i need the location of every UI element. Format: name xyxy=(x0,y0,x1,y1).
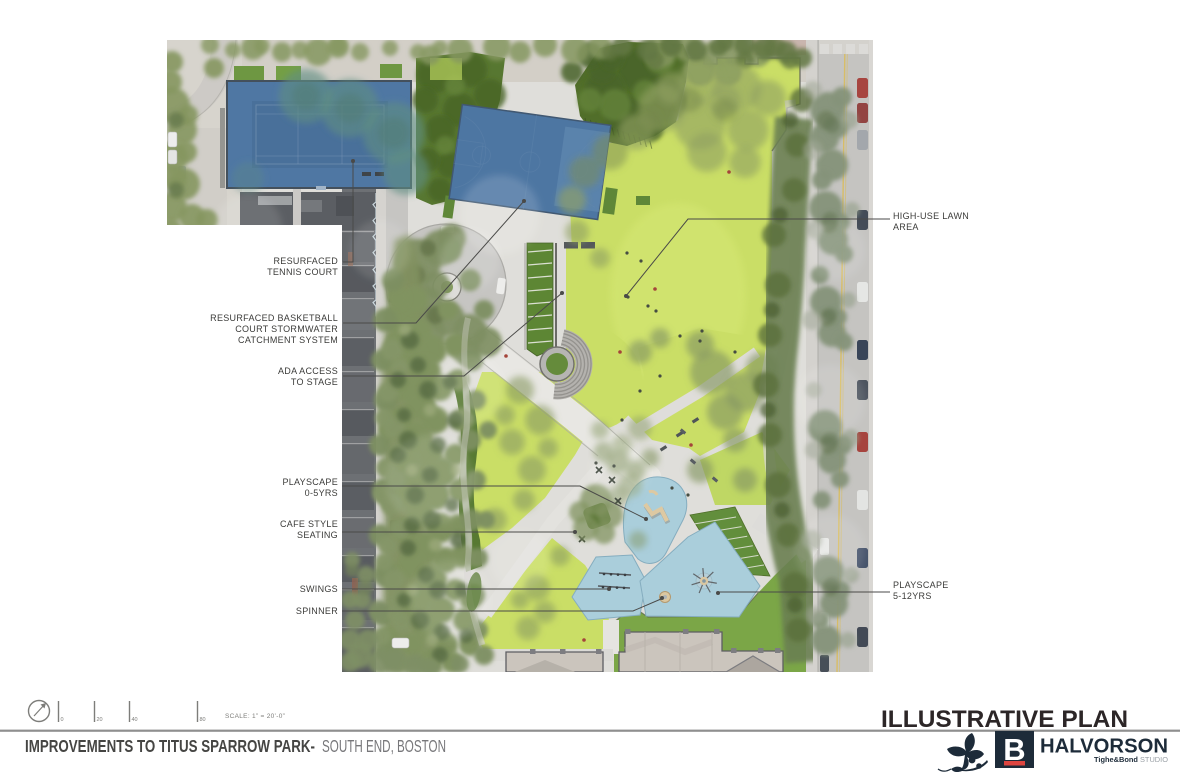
svg-text:SCALE: 1” = 20’-0”: SCALE: 1” = 20’-0” xyxy=(225,713,285,720)
svg-text:20: 20 xyxy=(97,717,103,723)
svg-text:SWINGS: SWINGS xyxy=(300,584,338,594)
svg-text:HALVORSON: HALVORSON xyxy=(1040,736,1168,758)
svg-text:RESURFACED BASKETBALLCOURT STO: RESURFACED BASKETBALLCOURT STORMWATERCAT… xyxy=(210,313,338,345)
svg-text:Tighe&Bond STUDIO: Tighe&Bond STUDIO xyxy=(1094,757,1169,764)
svg-text:PLAYSCAPE5-12YRS: PLAYSCAPE5-12YRS xyxy=(893,580,949,601)
svg-text:ADA ACCESSTO STAGE: ADA ACCESSTO STAGE xyxy=(278,366,338,387)
svg-text:80: 80 xyxy=(200,717,206,723)
svg-text:PLAYSCAPE0-5YRS: PLAYSCAPE0-5YRS xyxy=(282,477,338,498)
svg-text:IMPROVEMENTS TO TITUS SPARROW: IMPROVEMENTS TO TITUS SPARROW PARK- xyxy=(25,736,315,756)
svg-text:40: 40 xyxy=(132,717,138,723)
svg-text:CAFE STYLESEATING: CAFE STYLESEATING xyxy=(280,519,338,540)
svg-text:ILLUSTRATIVE PLAN: ILLUSTRATIVE PLAN xyxy=(881,706,1128,733)
svg-text:HIGH-USE LAWNAREA: HIGH-USE LAWNAREA xyxy=(893,211,969,232)
svg-text:SPINNER: SPINNER xyxy=(296,606,338,616)
svg-text:0: 0 xyxy=(61,717,64,723)
svg-text:RESURFACEDTENNIS COURT: RESURFACEDTENNIS COURT xyxy=(267,256,338,277)
svg-text:SOUTH END, BOSTON: SOUTH END, BOSTON xyxy=(322,736,446,756)
